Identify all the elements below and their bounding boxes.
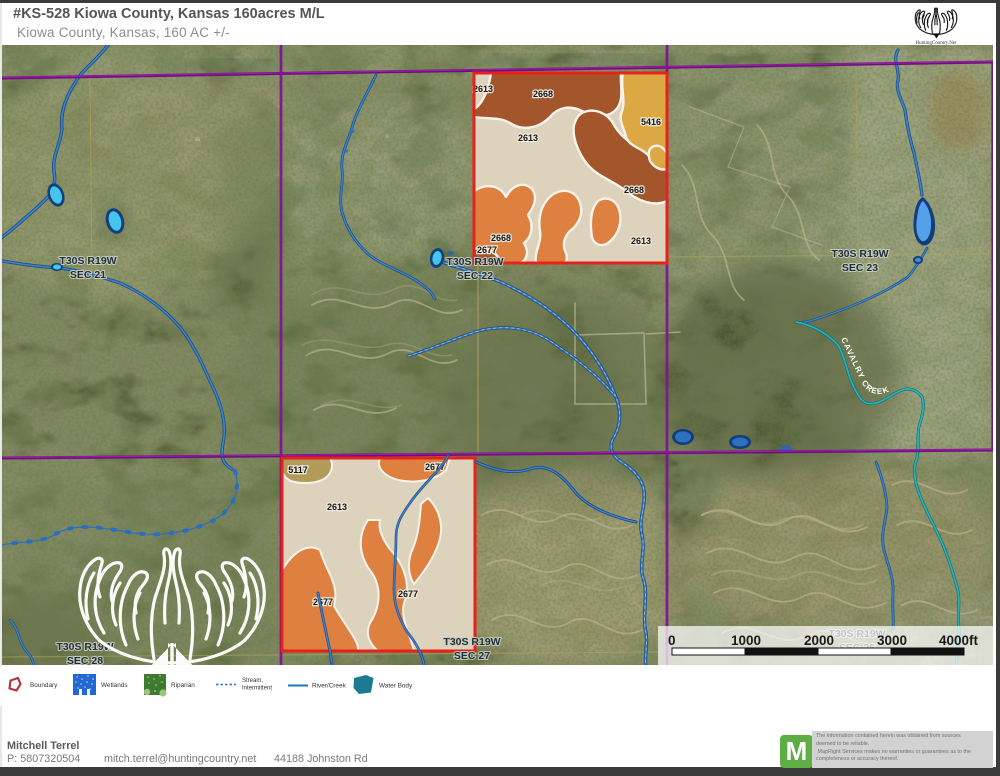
svg-text:SEC 22: SEC 22 — [457, 270, 493, 282]
svg-text:5416: 5416 — [641, 117, 661, 127]
svg-text:2677: 2677 — [398, 589, 418, 599]
svg-text:2668: 2668 — [533, 89, 553, 99]
svg-text:2613: 2613 — [327, 502, 347, 512]
svg-text:2677: 2677 — [313, 597, 333, 607]
svg-text:T30S R19W: T30S R19W — [59, 255, 116, 267]
svg-text:3000: 3000 — [877, 633, 907, 648]
svg-text:Wetlands: Wetlands — [101, 682, 128, 689]
svg-text:2677: 2677 — [477, 245, 497, 255]
svg-text:Intermittent: Intermittent — [242, 686, 272, 692]
svg-text:SEC 23: SEC 23 — [842, 262, 878, 274]
svg-text:Boundary: Boundary — [30, 682, 58, 689]
svg-text:Stream,: Stream, — [242, 678, 263, 684]
svg-text:2668: 2668 — [624, 185, 644, 195]
svg-text:River/Creek: River/Creek — [312, 683, 347, 690]
svg-text:4000ft: 4000ft — [939, 633, 979, 648]
svg-text:1000: 1000 — [731, 633, 761, 648]
svg-text:2613: 2613 — [518, 133, 538, 143]
svg-text:0: 0 — [668, 633, 676, 648]
svg-text:2668: 2668 — [491, 233, 511, 243]
svg-text:5117: 5117 — [288, 465, 308, 475]
svg-text:SEC 27: SEC 27 — [454, 650, 490, 662]
svg-text:T30S R19W: T30S R19W — [446, 256, 503, 268]
svg-text:Water Body: Water Body — [379, 683, 413, 690]
svg-text:2613: 2613 — [631, 236, 651, 246]
svg-text:Riparian: Riparian — [171, 682, 195, 689]
svg-text:2613: 2613 — [473, 84, 493, 94]
svg-text:2000: 2000 — [804, 633, 834, 648]
svg-text:T30S R19W: T30S R19W — [443, 636, 500, 648]
svg-text:SEC 21: SEC 21 — [70, 269, 106, 281]
svg-text:SEC 28: SEC 28 — [67, 655, 103, 665]
svg-text:T30S R19W: T30S R19W — [831, 248, 888, 260]
